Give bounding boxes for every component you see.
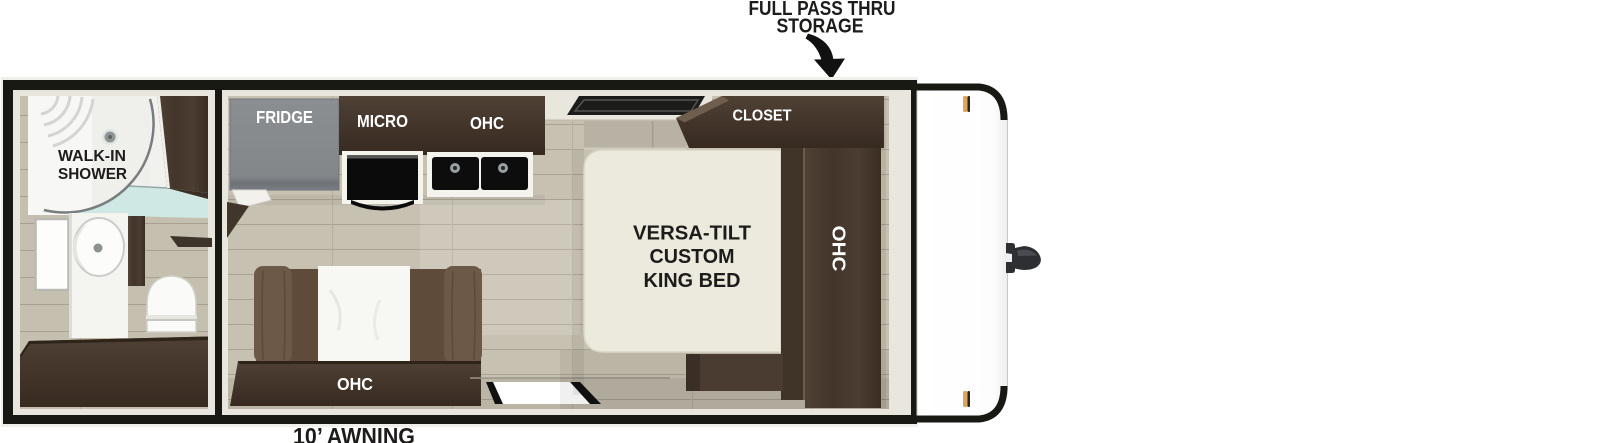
svg-text:OHC: OHC [829, 226, 849, 272]
svg-text:OHC: OHC [470, 113, 504, 133]
svg-text:CLOSET: CLOSET [733, 108, 792, 125]
svg-text:FRIDGE: FRIDGE [256, 107, 313, 127]
svg-text:WALK-IN: WALK-IN [58, 148, 126, 165]
svg-text:SHOWER: SHOWER [58, 166, 127, 183]
svg-text:MICRO: MICRO [357, 111, 408, 131]
svg-text:STORAGE: STORAGE [777, 15, 864, 38]
svg-text:CUSTOM: CUSTOM [650, 245, 735, 268]
svg-text:VERSA-TILT: VERSA-TILT [633, 222, 751, 245]
svg-text:OHC: OHC [337, 374, 373, 394]
svg-text:KING BED: KING BED [644, 269, 741, 292]
